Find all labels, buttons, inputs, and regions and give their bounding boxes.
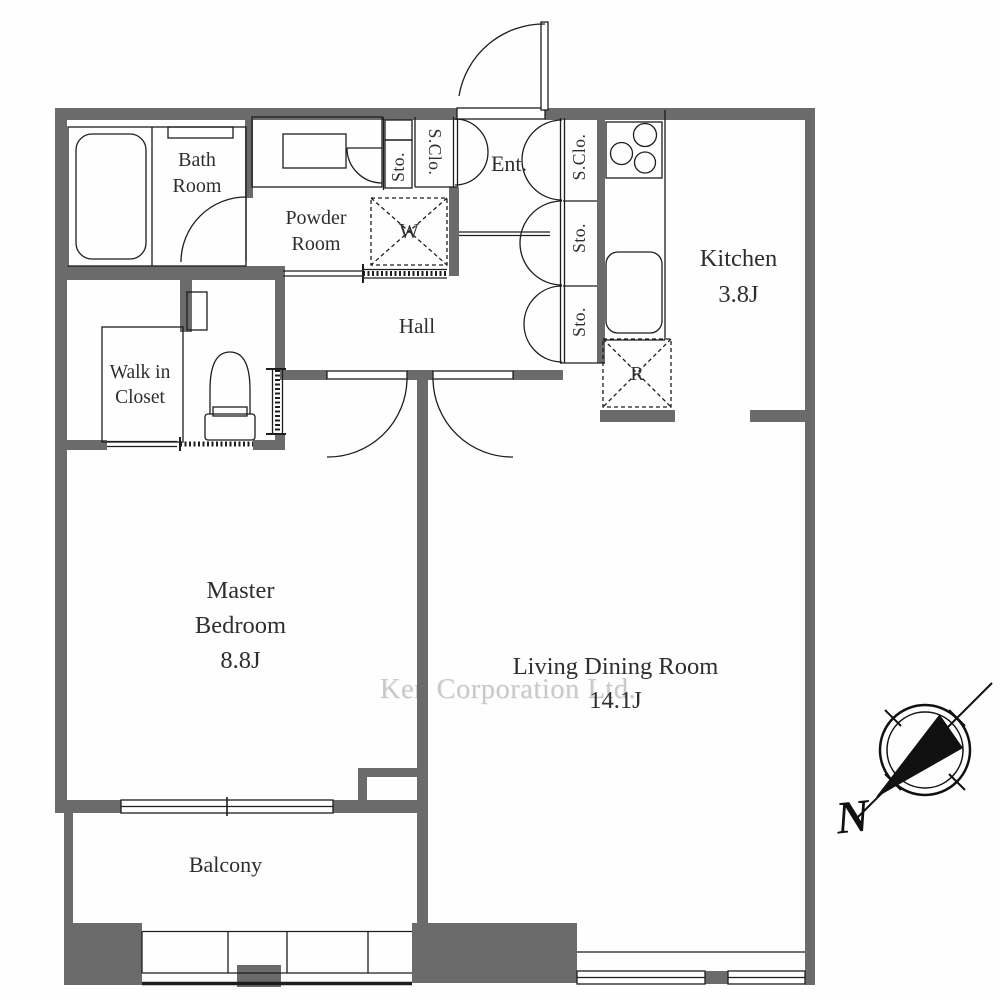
living-windows [577,952,805,984]
entrance-door-leaf [541,22,548,110]
compass-north-icon [858,683,992,817]
vanity-sink-icon [283,134,346,168]
room-label-wic: Walk in Closet [58,360,222,411]
hall-doors [327,371,513,457]
entrance-sill [457,108,545,119]
room-label-hall: Hall [357,313,477,340]
living-door-arc [433,379,513,457]
room-label-master-bedroom: Master Bedroom 8.8J [138,574,343,678]
closet-label-s-clo-entrance: S.Clo. [568,112,590,202]
bedroom-door-arc [327,379,407,457]
entrance-fixtures [457,22,550,236]
room-label-powder: Powder Room [236,205,396,257]
storage-door-arc [347,148,382,183]
closet-label-sto-powder: Sto. [387,122,409,212]
entrance-door-arc [459,24,545,96]
room-label-entrance: Ent. [459,150,559,179]
floor-plan: Ken Corporation Ltd. [0,0,1000,1000]
powder-sliding-door [283,264,447,283]
stove-icon [606,122,662,178]
toilet-basin [187,292,207,330]
bedroom-door-leaf [327,371,407,379]
room-label-kitchen: Kitchen 3.8J [656,241,821,312]
closet-label-s-clo-left: S.Clo. [424,107,446,197]
closet-label-sto-lower: Sto. [568,277,590,367]
balcony-railing [142,932,412,984]
room-label-living-dining: Living Dining Room 14.1J [413,650,818,719]
room-label-bath: Bath Room [137,147,257,199]
compass-needle [877,715,963,797]
vanity-counter [252,117,382,187]
washer-label: W [389,218,429,245]
toilet-sliding-door [266,369,286,434]
refrigerator-label: R [617,361,657,387]
bedroom-window [121,797,333,816]
room-label-balcony: Balcony [143,851,308,880]
kitchen-sink-icon [606,252,662,333]
closet-label-sto-upper: Sto. [568,193,590,283]
living-door-leaf [433,371,513,379]
compass-north-label: N [833,788,872,844]
bathtub-icon [76,134,146,259]
bath-counter [168,127,233,138]
